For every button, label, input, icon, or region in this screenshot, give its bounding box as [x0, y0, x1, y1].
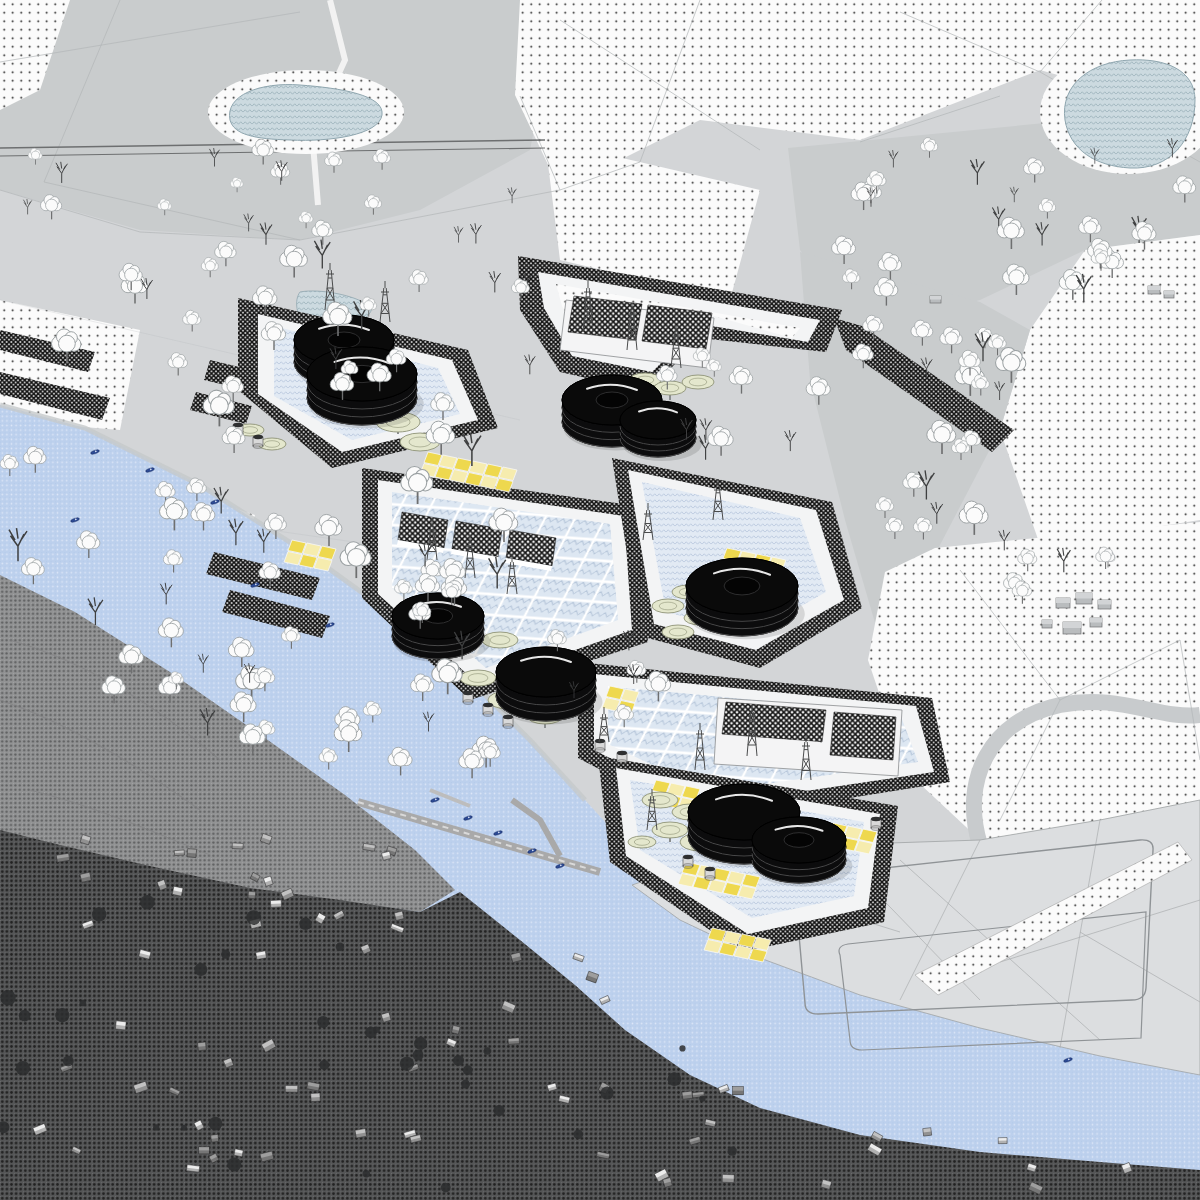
farm-building — [1063, 622, 1081, 634]
house — [186, 1165, 199, 1173]
town-tree — [153, 1124, 159, 1130]
town-tree — [463, 1065, 473, 1075]
town-tree — [317, 1016, 329, 1028]
house — [248, 891, 256, 899]
farm-building — [1148, 286, 1160, 294]
house — [187, 849, 197, 858]
town-tree — [299, 918, 311, 930]
house — [998, 1138, 1007, 1144]
farm-building — [1090, 618, 1102, 627]
storage-tank — [620, 401, 702, 461]
drum — [705, 867, 715, 880]
town-tree — [19, 1010, 31, 1022]
house — [234, 1149, 243, 1157]
circular-pad — [662, 625, 694, 639]
town-tree — [319, 1060, 329, 1070]
drum — [871, 817, 881, 830]
drum — [595, 739, 605, 752]
town-tree — [441, 1183, 451, 1193]
town-tree — [414, 1037, 427, 1050]
house — [211, 1134, 219, 1142]
house — [199, 1147, 209, 1154]
house — [270, 900, 281, 908]
house — [722, 1174, 734, 1182]
town-tree — [413, 1050, 424, 1061]
town-tree — [194, 963, 207, 976]
town-tree — [16, 1061, 30, 1075]
town-tree — [209, 1117, 223, 1131]
farm-building — [1056, 598, 1070, 608]
pond-northeast — [1064, 60, 1195, 168]
town-tree — [484, 1047, 492, 1055]
house — [382, 851, 392, 860]
house — [285, 1085, 298, 1092]
town-tree — [55, 1008, 69, 1022]
town-tree — [227, 1158, 241, 1172]
building-low — [714, 698, 902, 776]
town-tree — [400, 1057, 414, 1071]
farm-building — [1076, 593, 1092, 604]
storage-tank — [496, 647, 603, 725]
town-tree — [373, 1026, 380, 1033]
drum — [253, 435, 263, 448]
circular-pad — [460, 670, 496, 686]
circular-pad — [652, 599, 684, 613]
circular-pad — [682, 375, 714, 389]
town-tree — [601, 1086, 614, 1099]
town-tree — [679, 1045, 685, 1051]
house — [451, 1025, 460, 1034]
farm-building — [1098, 600, 1111, 609]
drum — [463, 691, 473, 704]
town-tree — [363, 1170, 370, 1177]
town-tree — [453, 1055, 464, 1066]
masterplan-collage — [0, 0, 1200, 1200]
circular-pad — [628, 836, 656, 848]
house — [682, 1091, 693, 1099]
house — [733, 1087, 744, 1095]
town-tree — [728, 1146, 737, 1155]
town-tree — [221, 950, 230, 959]
house — [311, 1093, 321, 1102]
town-tree — [181, 1125, 187, 1131]
storage-tank — [392, 593, 490, 663]
town-tree — [80, 1000, 86, 1006]
farm-building — [1042, 620, 1052, 628]
house — [508, 1038, 520, 1045]
town-tree — [668, 1072, 682, 1086]
house — [394, 911, 404, 921]
town-tree — [574, 1130, 584, 1140]
town-tree — [494, 1105, 505, 1116]
farm-building — [930, 296, 941, 303]
house — [115, 1021, 126, 1030]
house — [198, 1042, 207, 1051]
house — [172, 886, 183, 896]
house — [256, 951, 267, 960]
drum — [683, 855, 693, 868]
drum — [617, 751, 627, 764]
town-tree — [63, 1056, 74, 1067]
house — [174, 850, 184, 856]
town-tree — [336, 943, 344, 951]
town-tree — [699, 1095, 705, 1101]
site-plan-drawing — [0, 0, 1200, 1200]
house — [232, 843, 243, 849]
town-tree — [140, 895, 155, 910]
town-tree — [0, 990, 15, 1005]
drum — [483, 703, 493, 716]
house — [923, 1128, 932, 1136]
town-tree — [461, 1080, 470, 1089]
storage-tank — [752, 817, 852, 887]
circular-pad — [642, 792, 678, 808]
farm-building — [1164, 291, 1174, 298]
house — [355, 1129, 367, 1138]
town-tree — [92, 907, 106, 921]
town-tree — [246, 910, 261, 925]
storage-tank — [686, 558, 805, 639]
